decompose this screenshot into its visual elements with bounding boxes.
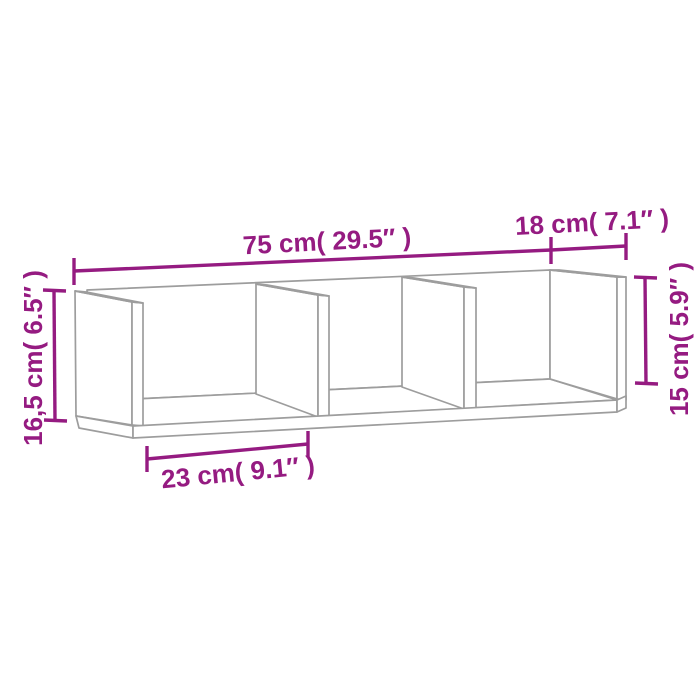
divider-2: [402, 277, 476, 410]
divider-1: [256, 284, 329, 418]
divider-2-front-edge: [464, 287, 476, 410]
divider-1-side-face: [256, 284, 318, 417]
shelf-drawing: [75, 270, 626, 438]
left-panel-front-edge: [132, 302, 143, 426]
divider-1-front-edge: [318, 295, 329, 418]
diagram-canvas: 75 cm( 29.5″ ) 18 cm( 7.1″ ) 16,5 cm( 6.…: [0, 0, 700, 700]
right-panel-inner-face: [550, 270, 617, 399]
width-dimension-label: 75 cm( 29.5″ ): [242, 222, 412, 261]
left-panel-outer-face: [75, 291, 132, 425]
inner-height-dimension-line: [645, 277, 646, 384]
divider-2-side-face: [402, 277, 464, 409]
total-height-dimension: 16,5 cm( 6.5″ ): [18, 270, 67, 446]
right-side-panel: [550, 270, 626, 400]
product-dimension-diagram: 75 cm( 29.5″ ) 18 cm( 7.1″ ) 16,5 cm( 6.…: [0, 0, 700, 700]
inner-height-top-cap: [634, 277, 657, 278]
total-height-dimension-line: [54, 291, 55, 421]
depth-dimension-line: [551, 246, 626, 250]
right-panel-front-edge: [617, 277, 626, 400]
total-height-dimension-label: 16,5 cm( 6.5″ ): [18, 270, 48, 446]
inner-height-bottom-cap: [635, 383, 658, 384]
inner-height-dimension: 15 cm( 5.9″ ): [634, 262, 694, 416]
compartment-width-dimension: 23 cm( 9.1″ ): [147, 431, 316, 494]
inner-height-dimension-label: 15 cm( 5.9″ ): [664, 262, 694, 416]
left-side-panel: [75, 291, 143, 426]
depth-dimension-label: 18 cm( 7.1″ ): [514, 203, 669, 241]
